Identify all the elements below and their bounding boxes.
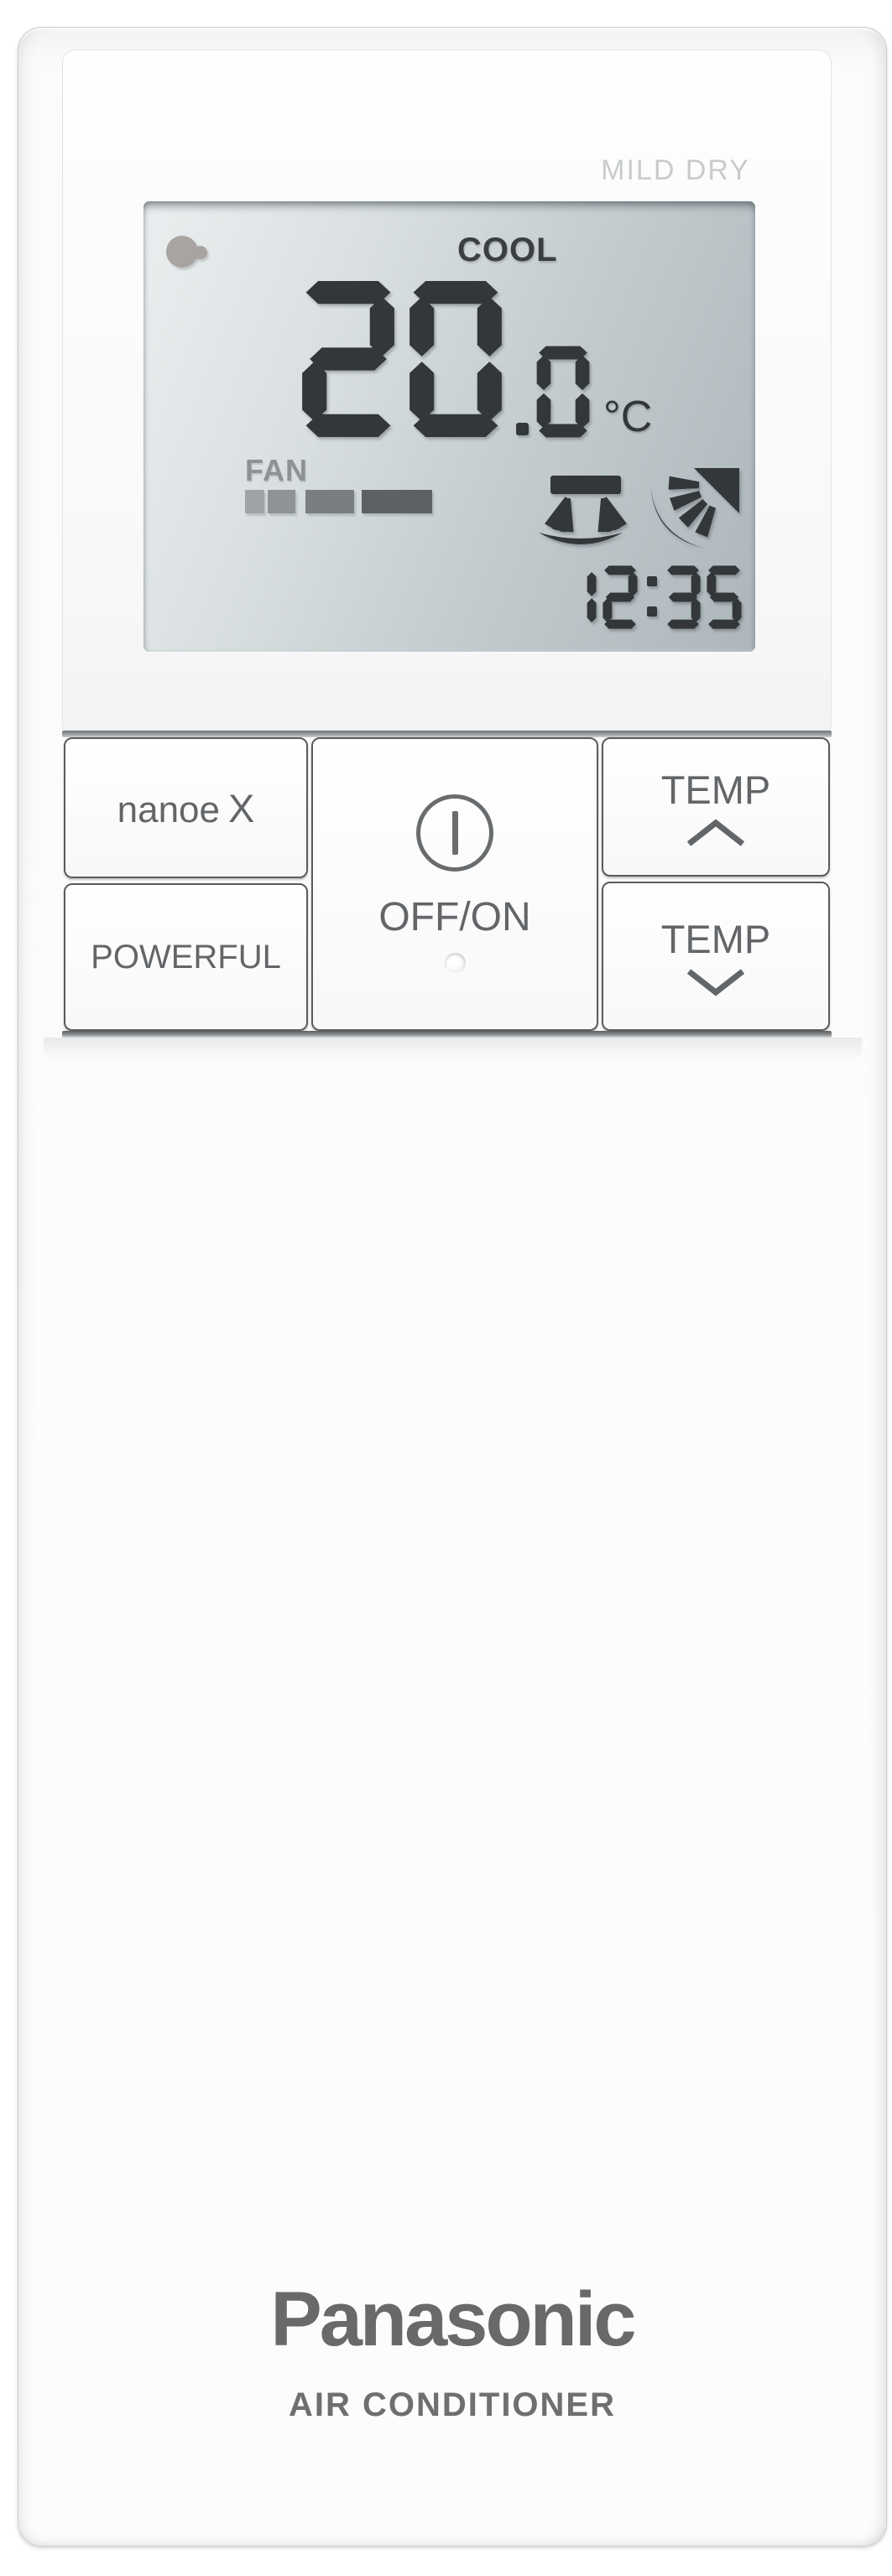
cover-shadow	[44, 1038, 862, 1059]
fan-speed-bars	[245, 490, 432, 513]
display-panel: MILD DRY COOL °C FAN	[62, 49, 832, 731]
temperature-integer-digits	[301, 280, 516, 438]
air-swing-horizontal-icon	[644, 468, 741, 550]
fan-bar	[305, 490, 354, 513]
remote-body: MILD DRY COOL °C FAN	[18, 27, 887, 2547]
nanoe-x-button[interactable]: nanoeX	[64, 737, 308, 878]
clock-colon	[647, 565, 658, 629]
lcd-screen: COOL °C FAN	[143, 201, 755, 652]
temp-up-button[interactable]: TEMP	[602, 737, 830, 877]
fan-bar	[362, 490, 432, 513]
off-on-label: OFF/ON	[378, 894, 530, 940]
product-label: AIR CONDITIONER	[18, 2386, 886, 2424]
temperature-display: °C	[301, 280, 652, 438]
temp-up-label: TEMP	[661, 767, 771, 813]
fan-label: FAN	[245, 453, 308, 488]
off-on-button[interactable]: OFF/ON	[311, 737, 598, 1031]
panel-divider-groove	[62, 731, 832, 737]
decimal-point	[516, 423, 529, 435]
mild-dry-label: MILD DRY	[601, 154, 750, 187]
temp-down-button[interactable]: TEMP	[602, 882, 830, 1031]
indicator-dot-small	[194, 246, 207, 259]
powerful-button-label: POWERFUL	[91, 939, 281, 976]
mode-label: COOL	[457, 232, 558, 269]
temp-unit: °C	[603, 398, 652, 438]
powerful-button[interactable]: POWERFUL	[64, 883, 308, 1031]
nanoe-x-button-label: nanoeX	[117, 785, 255, 831]
brand-logo: Panasonic	[18, 2276, 886, 2364]
nanoe-indicator-icon	[166, 236, 225, 269]
temp-down-label: TEMP	[661, 916, 771, 962]
power-icon	[416, 794, 493, 872]
cover-divider-groove	[62, 1031, 832, 1038]
temperature-fraction-digit	[536, 346, 590, 438]
air-swing-vertical-icon	[534, 476, 628, 548]
fan-bar	[268, 490, 295, 513]
fan-bar	[245, 490, 264, 513]
chevron-up-icon	[685, 818, 747, 848]
chevron-down-icon	[685, 967, 747, 997]
clock-display	[561, 565, 748, 629]
led-indicator	[445, 953, 466, 974]
